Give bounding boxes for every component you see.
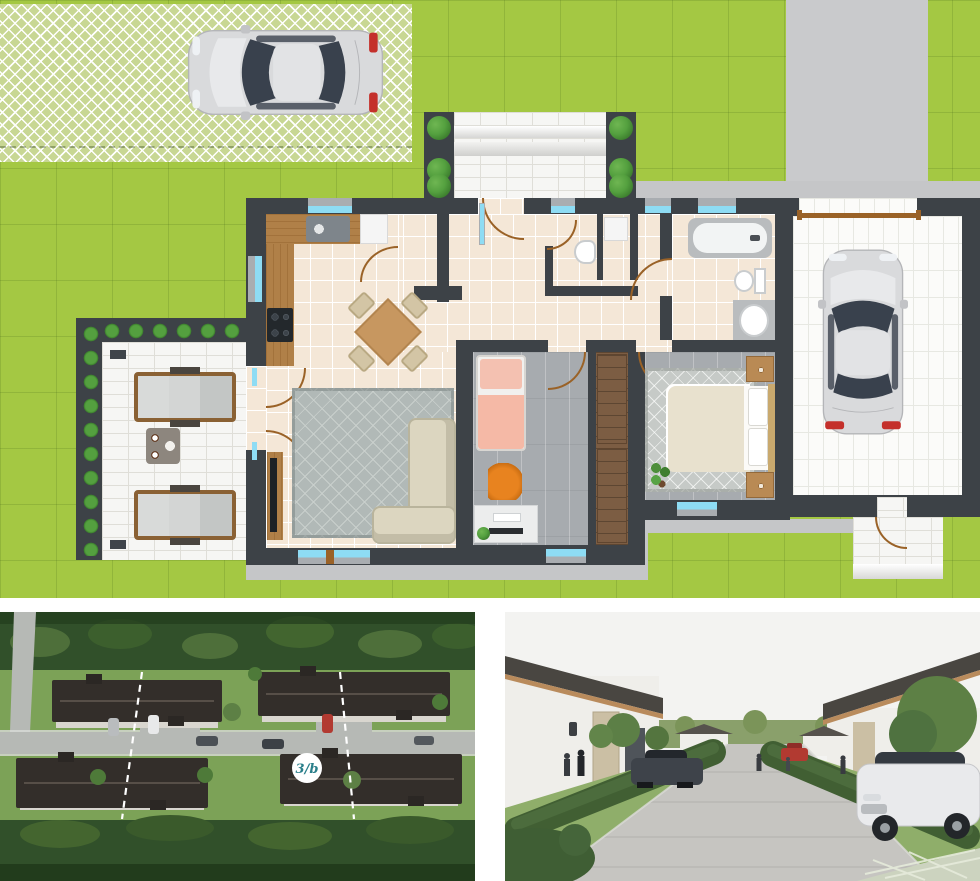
terrace-lamp — [110, 350, 126, 359]
aerial-house-2 — [258, 666, 450, 722]
bathtub — [688, 218, 772, 258]
wall-bedroom-closet — [588, 352, 596, 545]
garage-door-post — [916, 210, 921, 220]
wall-bath-left-a — [660, 214, 672, 260]
nightstand — [746, 356, 774, 382]
kitchen-side-window — [248, 256, 262, 302]
tv-screen — [270, 458, 277, 532]
porch-planter-right — [606, 112, 636, 198]
bathtub-faucet-icon — [750, 235, 760, 241]
living-window-divider — [326, 550, 334, 564]
wardrobe-unit — [597, 448, 627, 543]
kitchen-sink — [306, 216, 350, 242]
toilet-tank — [754, 268, 766, 294]
single-bed — [476, 355, 526, 451]
child-bedroom-window — [546, 549, 586, 563]
property-dashed-line — [0, 146, 412, 148]
property-plan-composite: 3/b — [0, 0, 980, 881]
garden-path-step — [853, 564, 943, 579]
sidewalk-bottom-right — [620, 519, 858, 533]
photo-aerial: 3/b — [0, 612, 475, 881]
living-window-2 — [334, 550, 370, 564]
terrace-door-leaf — [252, 368, 257, 386]
wall-hall-stub — [414, 286, 462, 300]
master-bedroom-window — [677, 502, 717, 516]
bathroom-window-1 — [645, 198, 671, 213]
lot-badge: 3/b — [292, 753, 322, 783]
cooktop — [267, 308, 293, 342]
fridge — [360, 214, 388, 244]
parked-car-icon — [183, 25, 388, 120]
pillow — [748, 388, 768, 426]
porch-planter-left — [424, 112, 454, 198]
terrace-hedge-top — [100, 319, 248, 343]
bush-icon — [609, 174, 633, 198]
bed-blanket — [666, 384, 750, 472]
washbasin — [739, 304, 769, 337]
pillow — [480, 359, 522, 389]
wall-living-bedroom — [456, 352, 473, 548]
lot-label: 3/b — [296, 762, 319, 777]
garage-back-door-opening — [877, 497, 907, 517]
keyboard — [489, 528, 523, 534]
forest-top — [0, 612, 475, 670]
nightstand — [746, 472, 774, 498]
wall-bath-left-b — [660, 296, 672, 340]
bush-icon — [427, 116, 451, 140]
terrace-hedge-left — [79, 322, 103, 556]
wall-wc-left — [545, 246, 553, 290]
sun-lounger — [134, 490, 236, 540]
bush-icon — [609, 116, 633, 140]
garage-door-post — [797, 210, 802, 220]
porch-step-2 — [454, 142, 606, 156]
photo-street — [505, 612, 980, 881]
small-plant-icon — [477, 527, 490, 540]
headboard — [768, 384, 775, 472]
sun-lounger — [134, 372, 236, 422]
desk-chair — [488, 463, 522, 500]
wall-hall-bedrooms-1 — [456, 340, 548, 352]
terrace-door-leaf — [252, 442, 257, 460]
garage-car-icon — [818, 240, 908, 444]
wall-wc-bottom — [545, 286, 638, 296]
washing-machine — [604, 217, 628, 241]
site-plan — [0, 0, 980, 598]
aerial-house-3 — [16, 752, 208, 810]
wall-hall-bedrooms-3 — [676, 340, 790, 352]
terrace-lamp — [110, 540, 126, 549]
double-bed — [666, 384, 770, 472]
wall-wc-divider — [597, 214, 603, 280]
wc-toilet — [574, 240, 596, 264]
wall-hall-bedrooms-2 — [586, 340, 636, 352]
street-render — [505, 612, 980, 881]
garage-door — [797, 213, 921, 218]
aerial-render: 3/b — [0, 612, 475, 881]
blanket — [478, 395, 524, 449]
sidewalk-top — [628, 181, 980, 199]
porch-step-1 — [454, 126, 606, 138]
forest-bottom — [0, 815, 475, 881]
sidewalk-bottom-long — [246, 563, 648, 580]
wardrobe-unit — [597, 354, 627, 444]
wall-wc-right — [630, 214, 638, 280]
pillow — [748, 428, 768, 466]
kitchen-counter-left — [266, 244, 294, 366]
bathroom-window-2 — [698, 198, 736, 213]
laptop — [493, 513, 521, 522]
coffee-table — [146, 428, 180, 464]
kitchen-window — [308, 198, 352, 213]
entry-door-leaf — [479, 203, 485, 245]
bush-icon — [427, 174, 451, 198]
wc-window — [551, 198, 575, 213]
bathroom-toilet — [734, 270, 754, 292]
living-window-1 — [298, 550, 326, 564]
potted-plant-icon — [646, 456, 674, 492]
corner-sofa-horizontal — [372, 506, 456, 544]
driveway — [786, 0, 928, 183]
